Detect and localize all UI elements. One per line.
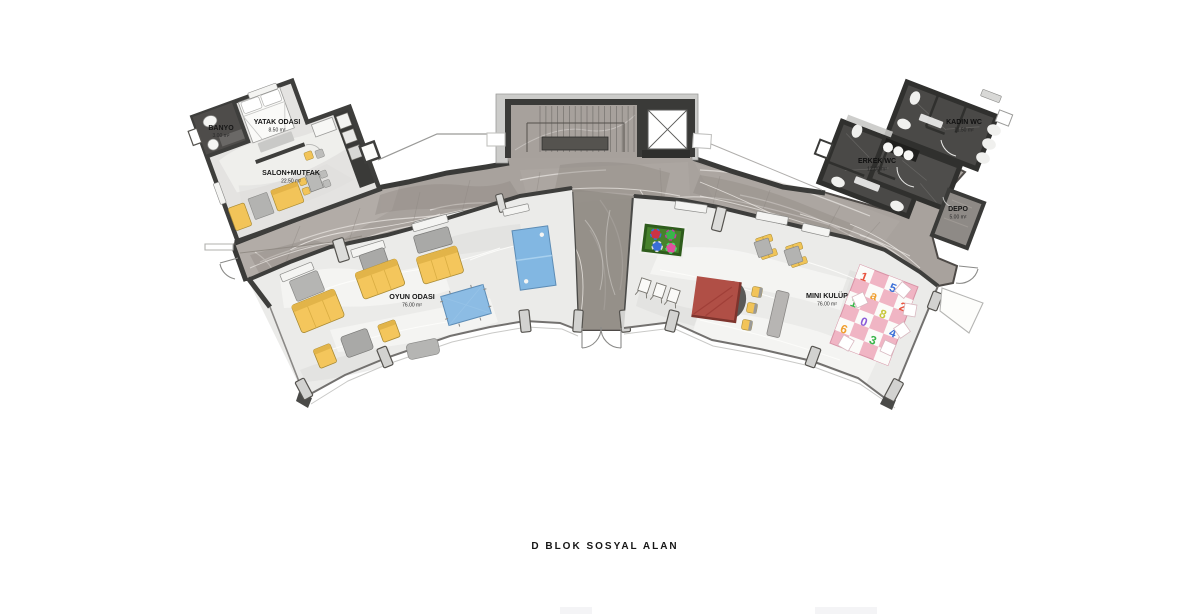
svg-text:11.50 m²: 11.50 m²	[954, 128, 974, 134]
svg-text:76.00 m²: 76.00 m²	[817, 302, 837, 308]
svg-text:D BLOK SOSYAL ALAN: D BLOK SOSYAL ALAN	[531, 541, 678, 552]
svg-text:YATAK ODASI: YATAK ODASI	[254, 119, 301, 126]
svg-text:OYUN ODASI: OYUN ODASI	[389, 292, 435, 301]
svg-text:12.00 m²: 12.00 m²	[867, 167, 887, 173]
svg-text:BANYO: BANYO	[208, 125, 234, 132]
svg-text:5.00 m²: 5.00 m²	[950, 215, 967, 221]
svg-text:8.50 m²: 8.50 m²	[269, 128, 286, 134]
svg-text:DEPO: DEPO	[948, 206, 968, 213]
svg-text:KADIN WC: KADIN WC	[946, 119, 982, 126]
svg-text:22.50 m²: 22.50 m²	[281, 179, 301, 185]
svg-text:SALON+MUTFAK: SALON+MUTFAK	[262, 170, 320, 177]
svg-text:MINI KULÜP: MINI KULÜP	[806, 291, 848, 300]
svg-text:76.00 m²: 76.00 m²	[402, 303, 422, 309]
svg-text:ERKEK WC: ERKEK WC	[858, 158, 896, 165]
svg-text:3.00 m²: 3.00 m²	[213, 133, 230, 139]
